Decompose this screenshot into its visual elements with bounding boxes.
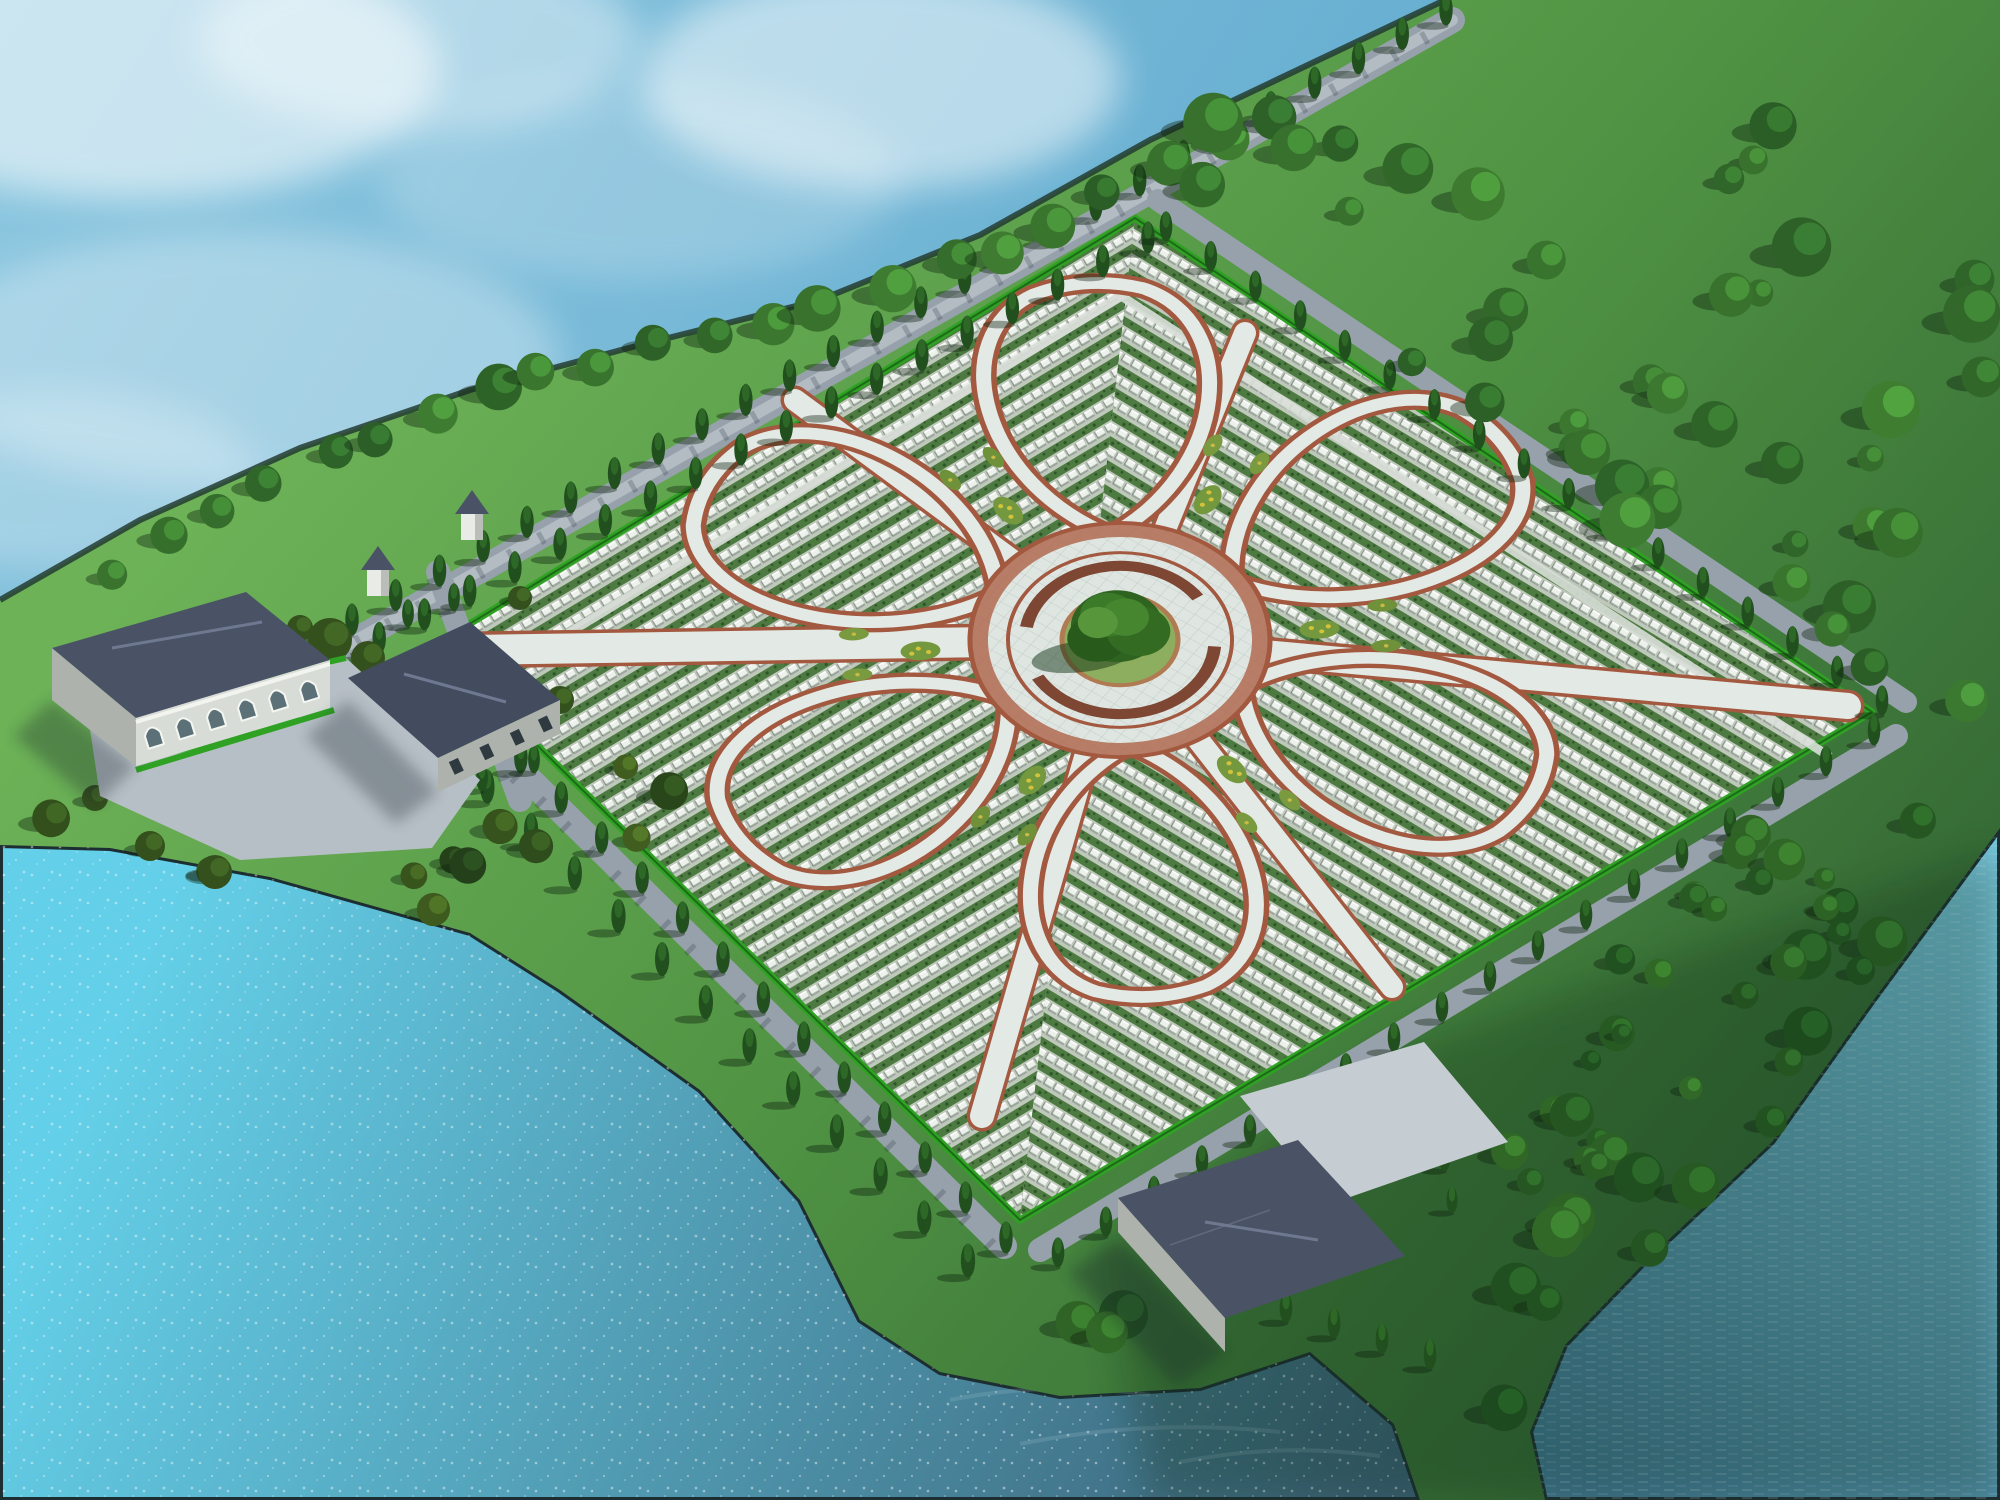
gate-tower-shade (381, 570, 389, 596)
memorial-park-aerial-rendering (0, 0, 2000, 1500)
cloud-reflection (380, 80, 900, 280)
aerial-rendering-stage (0, 0, 2000, 1500)
gate-tower-shade (475, 514, 483, 540)
